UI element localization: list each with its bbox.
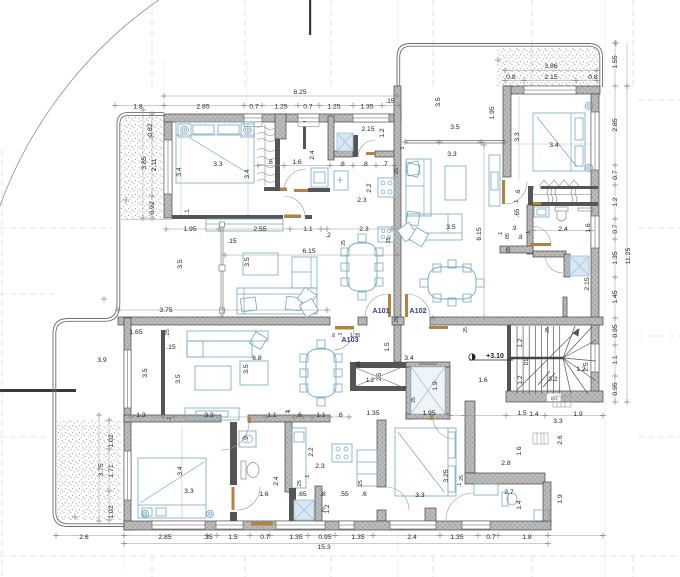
svg-text:3.3: 3.3 <box>447 151 457 158</box>
svg-text:25: 25 <box>459 475 465 481</box>
svg-text:3.5: 3.5 <box>446 224 456 231</box>
svg-text:0.95: 0.95 <box>612 382 619 395</box>
svg-text:1.35: 1.35 <box>360 104 373 111</box>
svg-text:2.4: 2.4 <box>558 226 568 233</box>
svg-text:1.1: 1.1 <box>612 355 619 365</box>
svg-text:25: 25 <box>506 247 512 253</box>
svg-text:D1: D1 <box>524 359 530 366</box>
svg-text:.1: .1 <box>514 200 520 205</box>
svg-text:8.25: 8.25 <box>293 89 306 96</box>
svg-text:3.2: 3.2 <box>548 376 558 383</box>
svg-text:2.6: 2.6 <box>557 435 564 445</box>
svg-text:.25: .25 <box>358 480 364 488</box>
svg-text:3.5: 3.5 <box>450 124 460 131</box>
svg-text:2.3: 2.3 <box>357 197 367 204</box>
svg-text:1.2: 1.2 <box>517 375 524 385</box>
svg-text:2.85: 2.85 <box>158 534 171 541</box>
svg-text:1.6: 1.6 <box>585 223 592 233</box>
svg-text:3.5: 3.5 <box>142 368 149 378</box>
svg-text:.1: .1 <box>167 417 173 422</box>
svg-text:1.1: 1.1 <box>316 412 326 419</box>
svg-text:25: 25 <box>463 327 469 333</box>
svg-text:.8: .8 <box>517 235 523 241</box>
svg-text:1.2: 1.2 <box>517 338 524 348</box>
svg-text:1.02: 1.02 <box>108 505 115 518</box>
svg-text:1.8: 1.8 <box>522 534 532 541</box>
svg-text:25: 25 <box>356 361 362 367</box>
svg-text:2.4: 2.4 <box>309 150 316 160</box>
svg-text:0.95: 0.95 <box>612 324 619 337</box>
svg-text:1.2: 1.2 <box>366 378 375 384</box>
svg-text:3.4: 3.4 <box>404 355 414 362</box>
svg-text:25: 25 <box>394 317 400 323</box>
svg-text:3.5: 3.5 <box>244 257 251 267</box>
svg-text:1.95: 1.95 <box>422 410 435 417</box>
svg-text:15.3: 15.3 <box>317 544 330 551</box>
svg-text:3.86: 3.86 <box>544 63 557 70</box>
svg-text:.8: .8 <box>339 161 345 168</box>
svg-text:1.1: 1.1 <box>303 226 313 233</box>
svg-text:3.4: 3.4 <box>176 167 183 177</box>
svg-text:2.55: 2.55 <box>253 226 266 233</box>
svg-text:2.85: 2.85 <box>196 104 209 111</box>
svg-text:1.95: 1.95 <box>183 226 196 233</box>
svg-text:6.15: 6.15 <box>476 227 483 240</box>
svg-text:3.9: 3.9 <box>97 357 107 364</box>
svg-text:1.35: 1.35 <box>366 410 379 417</box>
svg-text:1.6: 1.6 <box>478 377 488 384</box>
svg-text:11.25: 11.25 <box>625 248 632 265</box>
svg-text:3.5: 3.5 <box>243 364 250 374</box>
svg-text:2.15: 2.15 <box>361 126 374 133</box>
svg-text:1.35: 1.35 <box>350 333 361 339</box>
svg-text:.25: .25 <box>297 480 303 488</box>
svg-text:25: 25 <box>341 240 347 246</box>
svg-text:3.3: 3.3 <box>213 161 223 168</box>
svg-text:2.15: 2.15 <box>544 74 557 81</box>
svg-text:3.3: 3.3 <box>553 418 563 425</box>
svg-text:25: 25 <box>411 397 417 403</box>
svg-text:2.7: 2.7 <box>504 489 514 496</box>
svg-text:2.8: 2.8 <box>501 460 511 467</box>
svg-text:25: 25 <box>394 168 400 174</box>
svg-text:6.8: 6.8 <box>252 355 262 362</box>
svg-text:3.25: 3.25 <box>443 469 450 482</box>
svg-text:.25: .25 <box>386 237 392 245</box>
svg-text:1.35: 1.35 <box>351 534 364 541</box>
svg-text:1.35: 1.35 <box>612 251 619 264</box>
svg-text:1.5: 1.5 <box>517 410 527 417</box>
svg-text:.8: .8 <box>362 161 368 168</box>
svg-text:2.11: 2.11 <box>151 158 158 171</box>
svg-text:0.7: 0.7 <box>260 534 270 541</box>
svg-text:1.2: 1.2 <box>324 504 331 514</box>
svg-text:.6: .6 <box>331 333 336 339</box>
svg-text:.6: .6 <box>337 412 343 419</box>
svg-text:1.1: 1.1 <box>267 412 277 419</box>
svg-text:.9: .9 <box>511 226 517 232</box>
svg-text:.05: .05 <box>505 233 511 241</box>
svg-text:1.35: 1.35 <box>289 534 302 541</box>
svg-text:3.4: 3.4 <box>244 169 251 179</box>
svg-text:1.9: 1.9 <box>432 381 439 391</box>
svg-text:1.25: 1.25 <box>274 104 287 111</box>
svg-text:.1: .1 <box>184 209 191 215</box>
svg-text:3.4: 3.4 <box>549 142 559 149</box>
svg-text:2.4: 2.4 <box>273 476 280 486</box>
svg-text:0.7: 0.7 <box>612 224 619 234</box>
svg-text:3.5: 3.5 <box>175 374 182 384</box>
svg-text:1.2: 1.2 <box>379 128 386 138</box>
svg-text:1.8: 1.8 <box>133 104 143 111</box>
svg-text:2.5: 2.5 <box>583 362 590 372</box>
svg-text:A102: A102 <box>409 306 426 315</box>
svg-text:1: 1 <box>338 332 344 335</box>
svg-text:1.5: 1.5 <box>384 342 391 352</box>
svg-text:3.5: 3.5 <box>435 97 442 107</box>
svg-text:.15: .15 <box>385 98 395 105</box>
svg-text:3.5: 3.5 <box>177 259 184 269</box>
svg-text:.1: .1 <box>305 475 311 480</box>
svg-text:1.6: 1.6 <box>516 446 523 456</box>
svg-text:1.9: 1.9 <box>573 411 583 418</box>
svg-text:1: 1 <box>400 146 406 149</box>
svg-text:2.3: 2.3 <box>315 463 325 470</box>
svg-text:1.71: 1.71 <box>108 464 115 477</box>
svg-text:0.8: 0.8 <box>506 74 516 81</box>
svg-text:.9: .9 <box>243 436 250 442</box>
svg-text:1.25: 1.25 <box>327 104 340 111</box>
svg-text:.6: .6 <box>296 412 302 419</box>
svg-text:1.4: 1.4 <box>516 500 523 510</box>
svg-text:+3.10: +3.10 <box>486 353 504 360</box>
svg-text:1.6: 1.6 <box>292 159 302 166</box>
svg-text:0.7: 0.7 <box>303 104 313 111</box>
svg-text:1.55: 1.55 <box>612 55 619 68</box>
svg-text:0.7: 0.7 <box>486 534 496 541</box>
svg-text:.1: .1 <box>457 483 463 488</box>
svg-text:.65: .65 <box>297 491 307 498</box>
svg-text:1.6: 1.6 <box>259 491 269 498</box>
svg-text:0.7: 0.7 <box>612 170 619 180</box>
svg-text:6.15: 6.15 <box>302 248 315 255</box>
svg-text:.35: .35 <box>203 534 213 541</box>
svg-text:2.3: 2.3 <box>359 226 369 233</box>
svg-text:.2: .2 <box>325 232 331 239</box>
svg-text:1.4: 1.4 <box>529 411 539 418</box>
svg-text:0.95: 0.95 <box>318 534 331 541</box>
svg-text:.55: .55 <box>339 491 349 498</box>
svg-text:1.35: 1.35 <box>450 534 463 541</box>
svg-text:0.7: 0.7 <box>249 104 259 111</box>
svg-text:3.3: 3.3 <box>514 132 521 142</box>
svg-text:.15: .15 <box>227 238 237 245</box>
svg-text:1.65: 1.65 <box>129 329 142 336</box>
svg-text:.7: .7 <box>382 161 388 168</box>
svg-text:1.9: 1.9 <box>557 494 564 504</box>
svg-text:0.8: 0.8 <box>588 74 598 81</box>
svg-text:.1: .1 <box>526 231 532 236</box>
svg-text:1.2: 1.2 <box>612 197 619 207</box>
svg-text:0.82: 0.82 <box>147 123 154 136</box>
svg-text:1: 1 <box>285 410 291 413</box>
svg-text:3.3: 3.3 <box>184 488 194 495</box>
svg-text:3.4: 3.4 <box>177 466 184 476</box>
svg-text:.15: .15 <box>166 344 176 351</box>
svg-text:1.5: 1.5 <box>228 534 238 541</box>
svg-text:3.75: 3.75 <box>98 463 105 476</box>
svg-text:.1: .1 <box>498 232 504 237</box>
svg-text:3.75: 3.75 <box>159 307 172 314</box>
svg-text:3.85: 3.85 <box>141 156 148 169</box>
svg-text:.6: .6 <box>267 159 273 166</box>
svg-text:2.5: 2.5 <box>377 372 383 381</box>
svg-text:.8: .8 <box>320 491 326 498</box>
svg-text:2.15: 2.15 <box>584 277 591 290</box>
svg-text:3.3: 3.3 <box>204 412 214 419</box>
svg-text:2.85: 2.85 <box>612 118 619 131</box>
svg-text:2.6: 2.6 <box>79 534 89 541</box>
svg-text:2.2: 2.2 <box>366 183 373 193</box>
svg-text:1.45: 1.45 <box>612 290 619 303</box>
svg-text:2.4: 2.4 <box>407 534 417 541</box>
svg-text:1.3: 1.3 <box>136 412 146 419</box>
svg-text:25: 25 <box>545 327 551 333</box>
svg-text:A101: A101 <box>372 306 389 315</box>
svg-text:0.92: 0.92 <box>149 201 156 214</box>
svg-text:.6: .6 <box>516 189 522 195</box>
svg-text:1.02: 1.02 <box>108 434 115 447</box>
svg-text:.65: .65 <box>515 208 521 217</box>
svg-text:1.95: 1.95 <box>489 106 496 119</box>
svg-text:.6: .6 <box>361 491 367 498</box>
svg-text:3.3: 3.3 <box>415 492 425 499</box>
svg-text:.25: .25 <box>165 329 171 337</box>
svg-text:2.2: 2.2 <box>308 447 315 457</box>
